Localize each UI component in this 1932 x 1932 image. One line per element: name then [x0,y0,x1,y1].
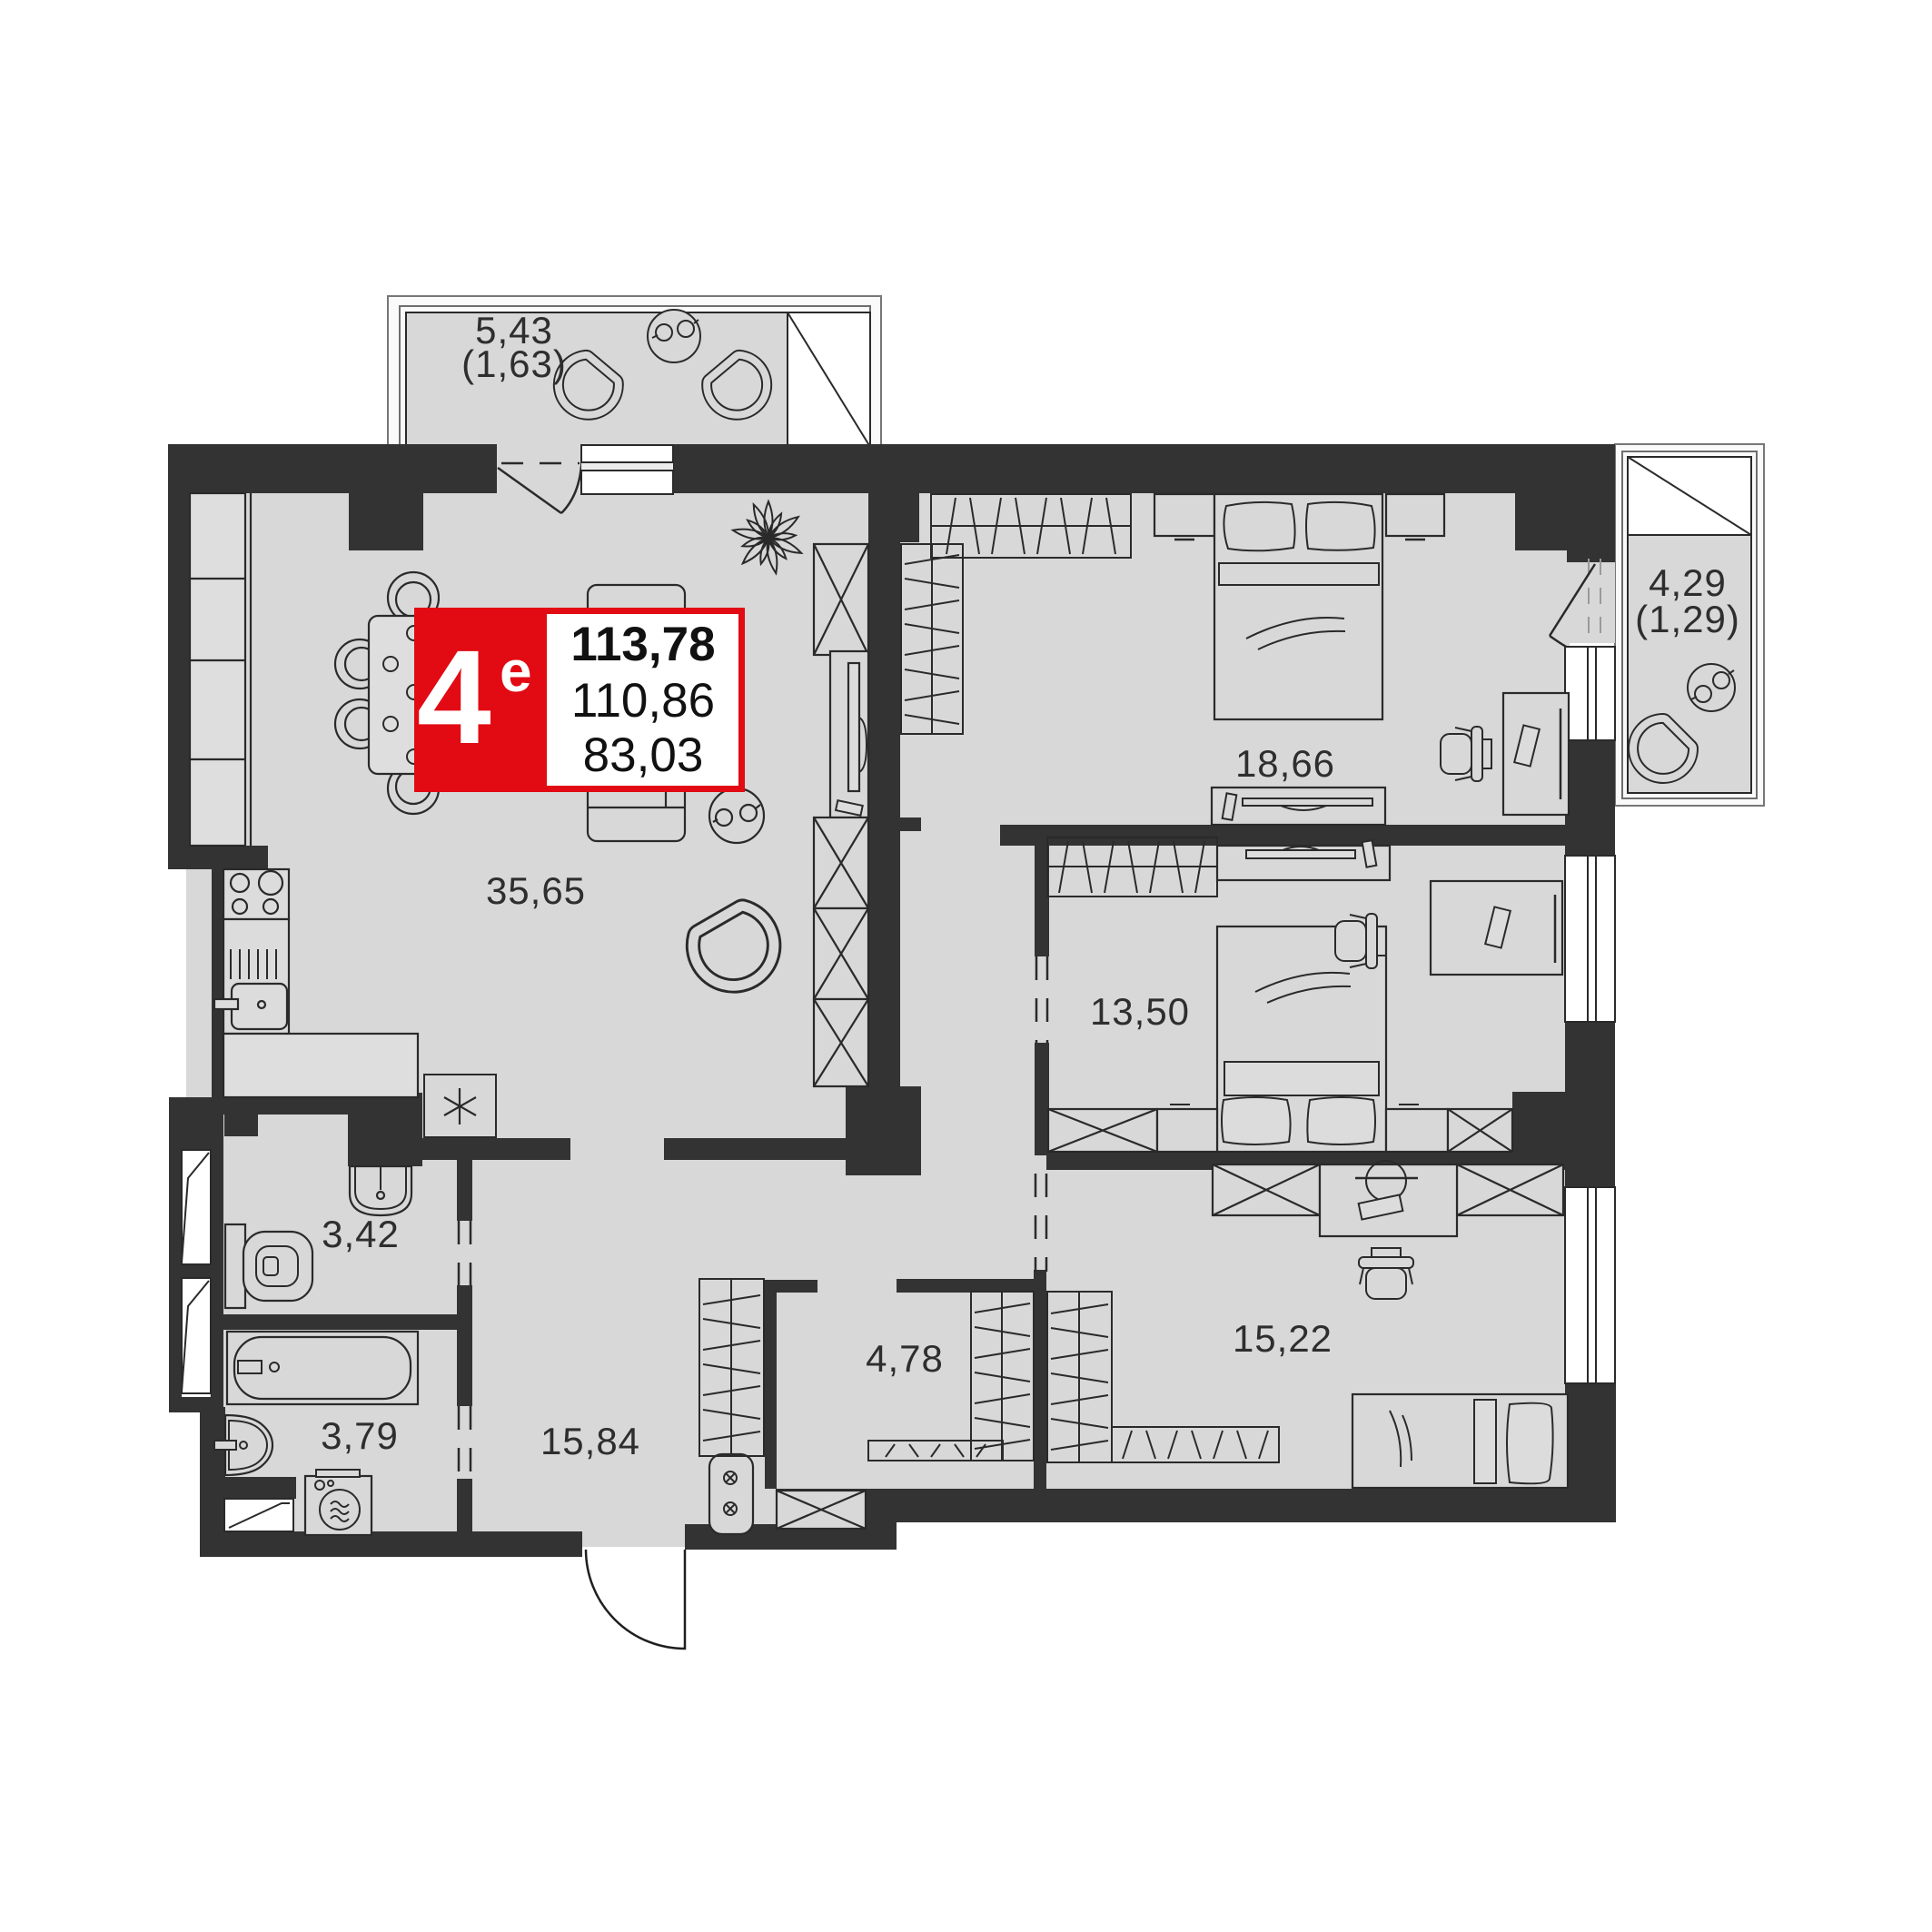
svg-text:(1,63): (1,63) [461,342,567,385]
svg-text:15,84: 15,84 [540,1420,640,1462]
svg-text:(1,29): (1,29) [1635,598,1740,640]
svg-text:13,50: 13,50 [1090,990,1190,1033]
svg-text:е: е [500,639,532,704]
svg-text:15,22: 15,22 [1233,1317,1333,1360]
svg-text:3,79: 3,79 [321,1414,399,1457]
svg-text:113,78: 113,78 [570,618,715,671]
svg-text:83,03: 83,03 [583,728,704,782]
svg-text:4: 4 [417,623,491,772]
svg-text:3,42: 3,42 [322,1213,400,1255]
svg-text:18,66: 18,66 [1235,742,1335,785]
svg-text:110,86: 110,86 [571,674,715,728]
svg-text:35,65: 35,65 [486,869,586,912]
svg-text:4,78: 4,78 [866,1337,944,1380]
